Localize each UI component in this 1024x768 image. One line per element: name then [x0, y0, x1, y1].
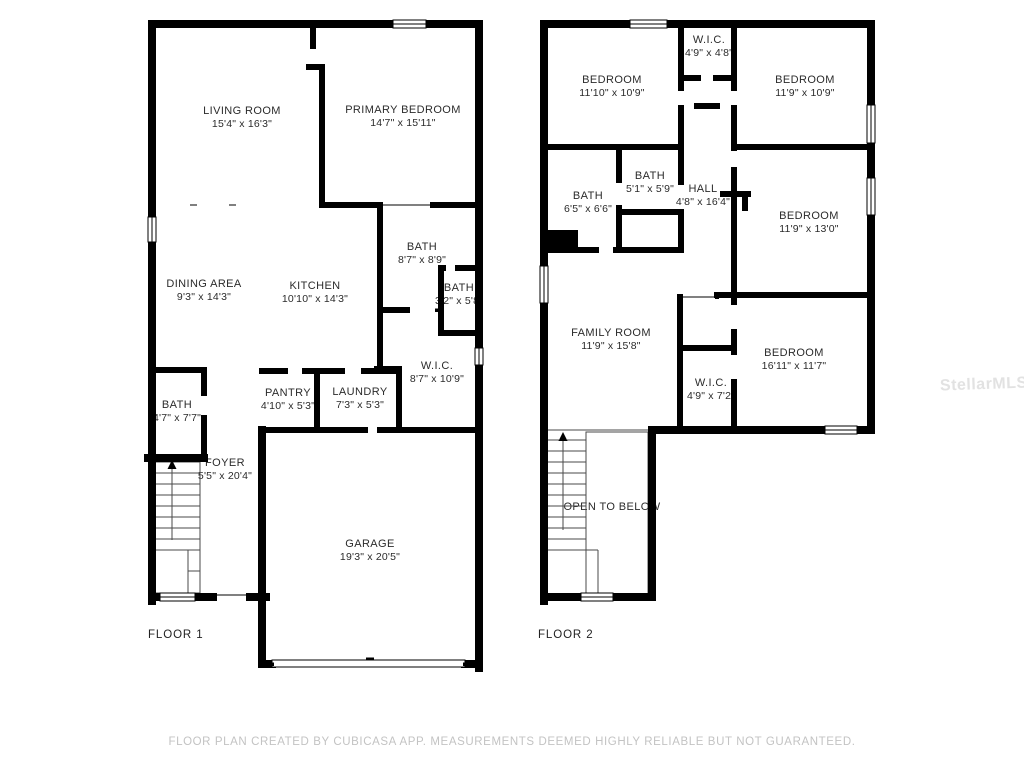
room-label-dining-area: DINING AREA 9'3" x 14'3"	[166, 277, 241, 305]
stairs-floor-1	[152, 462, 200, 593]
room-label-bedroom-3: BEDROOM 11'9" x 13'0"	[779, 209, 839, 237]
room-label-bath-primary: BATH 8'7" x 8'9"	[398, 240, 446, 268]
floor-plan-page: LIVING ROOM 15'4" x 16'3" PRIMARY BEDROO…	[0, 0, 1024, 768]
floor-1-title: FLOOR 1	[148, 629, 204, 641]
room-label-garage: GARAGE 19'3" x 20'5"	[340, 537, 400, 565]
room-label-bedroom-1: BEDROOM 11'10" x 10'9"	[579, 73, 644, 101]
room-label-bath-small: BATH 3'2" x 5'8"	[435, 281, 483, 309]
floor-1-door-ticks	[204, 44, 467, 664]
room-label-kitchen: KITCHEN 10'10" x 14'3"	[282, 279, 348, 307]
room-label-open-to-below: OPEN TO BELOW	[563, 500, 660, 514]
room-label-bath-foyer: BATH 4'7" x 7'7"	[153, 398, 201, 426]
watermark: StellarMLS	[940, 374, 1024, 395]
room-label-bedroom-4: BEDROOM 16'11" x 11'7"	[762, 346, 827, 374]
stairs-up-arrow-icon	[168, 460, 177, 469]
floor-plan-drawing	[0, 0, 1024, 768]
room-label-pantry: PANTRY 4'10" x 5'3"	[261, 386, 315, 414]
room-label-bedroom-2: BEDROOM 11'9" x 10'9"	[775, 73, 835, 101]
garage-door	[272, 660, 465, 667]
floor-2-title: FLOOR 2	[538, 629, 594, 641]
room-label-wic-floor1: W.I.C. 8'7" x 10'9"	[410, 359, 464, 387]
room-label-wic-top: W.I.C. 4'9" x 4'8"	[685, 33, 733, 61]
room-label-living-room: LIVING ROOM 15'4" x 16'3"	[203, 104, 281, 132]
room-label-family-room: FAMILY ROOM 11'9" x 15'8"	[571, 326, 651, 354]
stairs-up-arrow-icon-2	[559, 432, 568, 441]
room-label-hall: HALL 4'8" x 16'4"	[676, 182, 730, 210]
footer-disclaimer: FLOOR PLAN CREATED BY CUBICASA APP. MEAS…	[0, 736, 1024, 748]
room-label-primary-bedroom: PRIMARY BEDROOM 14'7" x 15'11"	[345, 103, 461, 131]
floor-2-walls-exterior	[544, 24, 871, 601]
room-label-wic-bedroom4: W.I.C. 4'9" x 7'2"	[687, 376, 735, 404]
room-label-laundry: LAUNDRY 7'3" x 5'3"	[332, 385, 387, 413]
room-label-foyer: FOYER 5'5" x 20'4"	[198, 456, 252, 484]
wall-block	[540, 230, 578, 253]
room-label-bath-51: BATH 5'1" x 5'9"	[626, 169, 674, 197]
room-label-bath-65: BATH 6'5" x 6'6"	[564, 189, 612, 217]
